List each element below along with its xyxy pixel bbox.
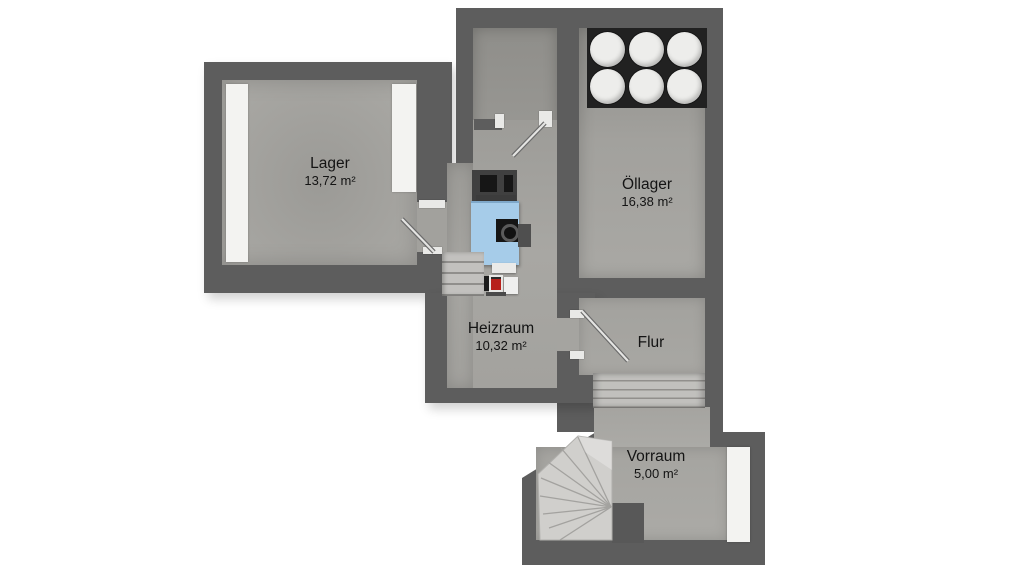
door-jamb <box>539 111 552 127</box>
oil-tank <box>629 32 664 67</box>
room-vorraum-floor-top <box>594 407 710 447</box>
oil-tank <box>667 32 702 67</box>
door-jamb <box>423 247 442 254</box>
floor-plan: Lager 13,72 m² Öllager 16,38 m² Heizraum… <box>0 0 1024 576</box>
room-flur-floor <box>579 298 705 375</box>
door-jamb <box>419 200 445 208</box>
burner-plate <box>492 263 516 273</box>
stair-newel-wall <box>612 503 644 543</box>
burner-foot <box>486 292 506 296</box>
chimney-vent <box>504 175 513 192</box>
oil-tank <box>590 32 625 67</box>
oil-tank <box>667 69 702 104</box>
oil-tank <box>590 69 625 104</box>
oil-tank <box>629 69 664 104</box>
door-jamb <box>570 351 584 359</box>
boiler-side-tab <box>518 224 531 247</box>
room-lager-floor <box>222 80 417 265</box>
door-jamb <box>495 114 504 128</box>
burner-red-unit <box>489 275 503 292</box>
chimney-vent <box>480 175 497 192</box>
lager-shelf-right <box>392 84 416 192</box>
burner-box <box>504 277 518 294</box>
door-jamb <box>570 310 584 318</box>
lager-shelf-left <box>226 84 248 262</box>
vorraum-exterior-door <box>727 447 750 542</box>
stairs-flur-vorraum <box>593 373 705 408</box>
stairs-heizraum <box>442 252 484 296</box>
heizraum-flur-door-opening <box>557 318 579 351</box>
boiler-flue-ring <box>501 224 519 242</box>
